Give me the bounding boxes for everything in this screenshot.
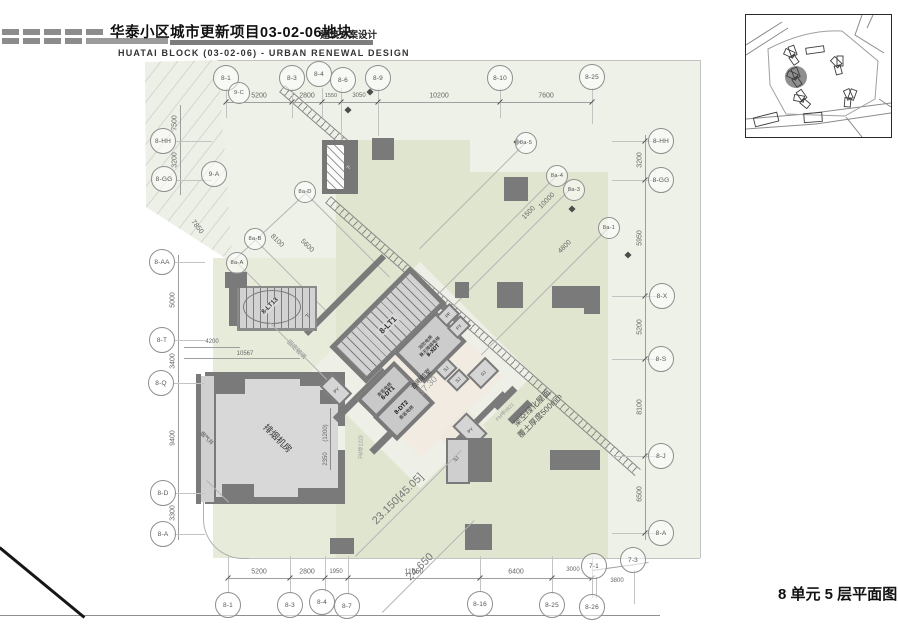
sheet-subtitle: 建筑方案设计 xyxy=(320,27,377,41)
grid-bubble: 8-HH xyxy=(648,128,674,154)
dimension-label: 7500 xyxy=(172,115,179,131)
wall-segment xyxy=(372,138,394,160)
wall-segment xyxy=(215,372,245,394)
grid-line xyxy=(174,493,205,494)
dimension-label: 5200 xyxy=(637,319,644,335)
grid-line xyxy=(226,88,227,118)
wall-segment xyxy=(222,484,254,498)
grid-bubble: 8-1 xyxy=(215,592,241,618)
grid-line xyxy=(174,534,205,535)
grid-bubble: 8-HH xyxy=(150,128,176,154)
grid-bubble: 9-C xyxy=(228,82,250,104)
grid-line xyxy=(174,262,205,263)
grid-bubble: 8-S xyxy=(648,346,674,372)
grid-bubble: 7-1 xyxy=(581,553,607,579)
grid-bubble: 8-AA xyxy=(149,249,175,275)
logo-block xyxy=(23,29,40,35)
wall-segment xyxy=(225,272,247,288)
dimension-label: 6400 xyxy=(508,569,524,576)
grid-bubble: 8-7 xyxy=(334,593,360,619)
dimension-label: 8100 xyxy=(637,399,644,415)
grid-bubble: 8-3 xyxy=(279,65,305,91)
building-block xyxy=(550,450,600,470)
wall-segment xyxy=(298,488,340,500)
building-block xyxy=(455,282,469,298)
logo-block xyxy=(23,38,40,44)
dimension-label: 3050 xyxy=(352,93,365,99)
dimension-label: 2800 xyxy=(299,93,315,100)
logo-block xyxy=(86,29,103,35)
logo-block xyxy=(65,29,82,35)
grid-bubble: 8-9 xyxy=(365,65,391,91)
grid-line xyxy=(634,570,635,604)
sheet-title: 华泰小区城市更新项目03-02-06地块 xyxy=(110,21,352,42)
grid-bubble: 8a-3 xyxy=(563,179,585,201)
grid-bubble: 8-16 xyxy=(467,591,493,617)
door-tag: FM甲1223 xyxy=(358,435,365,458)
grid-bubble: 8-10 xyxy=(487,65,513,91)
road-edge-line xyxy=(0,546,85,618)
wall-segment xyxy=(468,438,492,482)
dimension-label: 1550 xyxy=(325,93,337,99)
grid-line xyxy=(500,88,501,118)
key-map-roads xyxy=(746,15,891,137)
dimension-line xyxy=(228,578,592,579)
building-footprint xyxy=(784,45,799,65)
building-block xyxy=(584,304,600,314)
grid-bubble: 8-A xyxy=(150,521,176,547)
building-block xyxy=(465,524,492,550)
grid-bubble: 8-25 xyxy=(539,592,565,618)
grid-bubble: 8-3 xyxy=(277,592,303,618)
grid-bubble: 8-J xyxy=(648,443,674,469)
grid-bubble: 8a-1 xyxy=(598,217,620,239)
grid-bubble: 8a-D xyxy=(294,181,316,203)
grid-bubble: 7-3 xyxy=(620,547,646,573)
grid-line xyxy=(325,556,326,592)
dimension-line xyxy=(180,105,181,195)
dimension-line xyxy=(184,347,240,348)
grid-bubble: 8-6 xyxy=(330,67,356,93)
dimension-line xyxy=(645,135,646,540)
dimension-line xyxy=(184,358,300,359)
site-boundary xyxy=(700,60,701,558)
dimension-label: 7600 xyxy=(538,93,554,100)
building-block xyxy=(330,538,354,554)
grid-line xyxy=(341,88,342,140)
dimension-label: 9400 xyxy=(170,430,177,446)
dimension-label: 3200 xyxy=(637,152,644,168)
dimension-label: 5200 xyxy=(251,93,267,100)
drawing-caption: 8 单元 5 层平面图 xyxy=(778,583,897,604)
grid-bubble: 8-26 xyxy=(579,594,605,620)
grid-bubble: 8-X xyxy=(649,283,675,309)
grid-bubble: 8-Q xyxy=(148,370,174,396)
drawing-sheet: 华泰小区城市更新项目03-02-06地块 建筑方案设计 HUATAI BLOCK… xyxy=(0,0,898,633)
logo-block xyxy=(2,29,19,35)
logo-block xyxy=(44,38,61,44)
dimension-label: 11050 xyxy=(405,569,424,576)
dimension-label: 10567 xyxy=(237,351,254,357)
building-footprint xyxy=(827,53,848,77)
grid-bubble: 8-D xyxy=(150,480,176,506)
grid-line xyxy=(322,88,323,118)
dimension-line xyxy=(330,408,331,470)
building-block xyxy=(497,282,523,308)
logo-block xyxy=(44,29,61,35)
building-block xyxy=(504,177,528,201)
door-opening xyxy=(338,426,345,450)
dimension-line xyxy=(178,255,179,540)
grid-bubble: 8-4 xyxy=(306,61,332,87)
dimension-label: 3800 xyxy=(610,578,623,584)
grid-line xyxy=(592,88,593,124)
dimension-label: 5950 xyxy=(637,230,644,246)
sheet-title-en: HUATAI BLOCK (03-02-06) - URBAN RENEWAL … xyxy=(118,48,410,58)
frame-line xyxy=(0,615,660,616)
grid-line xyxy=(378,88,379,136)
grid-bubble: 8-25 xyxy=(579,64,605,90)
grid-bubble: 8-T xyxy=(149,327,175,353)
site-boundary-curve xyxy=(203,500,249,559)
dimension-label: 10200 xyxy=(429,93,448,100)
dimension-label: 3400 xyxy=(170,353,177,369)
logo-block xyxy=(65,38,82,44)
building-footprint xyxy=(791,88,811,111)
dimension-label: 2350 xyxy=(323,452,329,465)
key-map-frame xyxy=(745,14,892,138)
grid-bubble: 8a-B xyxy=(244,228,266,250)
grid-bubble: 8-GG xyxy=(151,166,177,192)
dimension-line xyxy=(226,102,592,103)
grid-line xyxy=(176,141,212,142)
grid-bubble: 8-GG xyxy=(648,167,674,193)
dimension-label: 5200 xyxy=(251,569,267,576)
grid-bubble: 8-A xyxy=(648,520,674,546)
site-boundary xyxy=(218,60,700,61)
dimension-label: 3300 xyxy=(170,505,177,521)
grid-line xyxy=(292,88,293,118)
dimension-label: 6500 xyxy=(637,486,644,502)
grid-bubble: 8a-5 xyxy=(515,132,537,154)
dimension-label: 3000 xyxy=(566,567,579,573)
grid-bubble: 8a-A xyxy=(226,252,248,274)
grid-bubble: 8-4 xyxy=(309,589,335,615)
dimension-label: (1200) xyxy=(323,424,329,441)
wall-segment xyxy=(229,286,237,326)
grid-line xyxy=(174,383,205,384)
building-footprint xyxy=(836,84,861,109)
grid-bubble: 9-A xyxy=(201,161,227,187)
key-map xyxy=(746,15,891,137)
skylight-glass xyxy=(327,145,344,189)
dimension-label: 3200 xyxy=(172,152,179,168)
grid-line xyxy=(174,340,205,341)
dimension-label: 5000 xyxy=(170,292,177,308)
dimension-label: 4200 xyxy=(205,339,218,345)
dimension-label: 1950 xyxy=(329,569,342,575)
logo-block xyxy=(2,38,19,44)
dimension-label: 2800 xyxy=(299,569,315,576)
grid-line xyxy=(480,556,481,592)
